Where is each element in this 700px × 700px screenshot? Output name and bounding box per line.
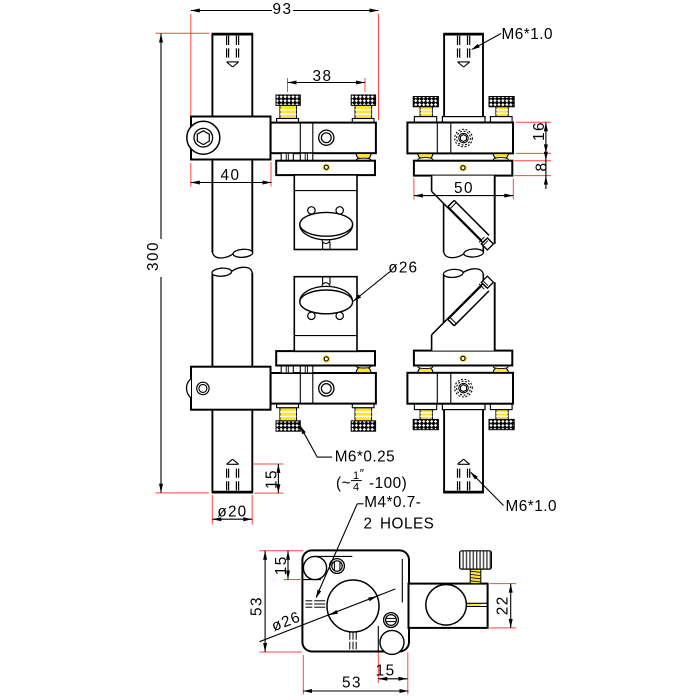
svg-text:300: 300 (145, 241, 162, 271)
svg-text:M6*1.0: M6*1.0 (506, 498, 557, 515)
svg-text:M6*0.25: M6*0.25 (335, 449, 395, 466)
svg-text:15: 15 (273, 555, 290, 575)
svg-text:M4*0.7-: M4*0.7- (364, 494, 421, 511)
svg-text:15: 15 (376, 663, 396, 680)
svg-text:HOLES: HOLES (380, 515, 434, 532)
svg-text:53: 53 (249, 596, 266, 616)
svg-text:93: 93 (272, 1, 292, 18)
svg-text:53: 53 (342, 675, 362, 692)
svg-text:16: 16 (531, 121, 548, 141)
svg-text:(~: (~ (336, 475, 351, 492)
svg-text:-100): -100) (369, 475, 407, 492)
svg-text:ø20: ø20 (217, 504, 247, 521)
svg-text:8: 8 (533, 161, 550, 171)
svg-text:2: 2 (364, 515, 373, 532)
svg-text:M6*1.0: M6*1.0 (502, 26, 553, 43)
svg-text:1: 1 (353, 470, 360, 482)
svg-text:15: 15 (264, 469, 281, 489)
svg-text:40: 40 (220, 167, 240, 184)
svg-text:ø26: ø26 (388, 260, 418, 277)
svg-text:38: 38 (312, 68, 332, 85)
svg-text:22: 22 (495, 595, 512, 615)
svg-text:50: 50 (454, 180, 474, 197)
svg-text:4: 4 (353, 481, 360, 493)
svg-text:″: ″ (360, 467, 365, 481)
